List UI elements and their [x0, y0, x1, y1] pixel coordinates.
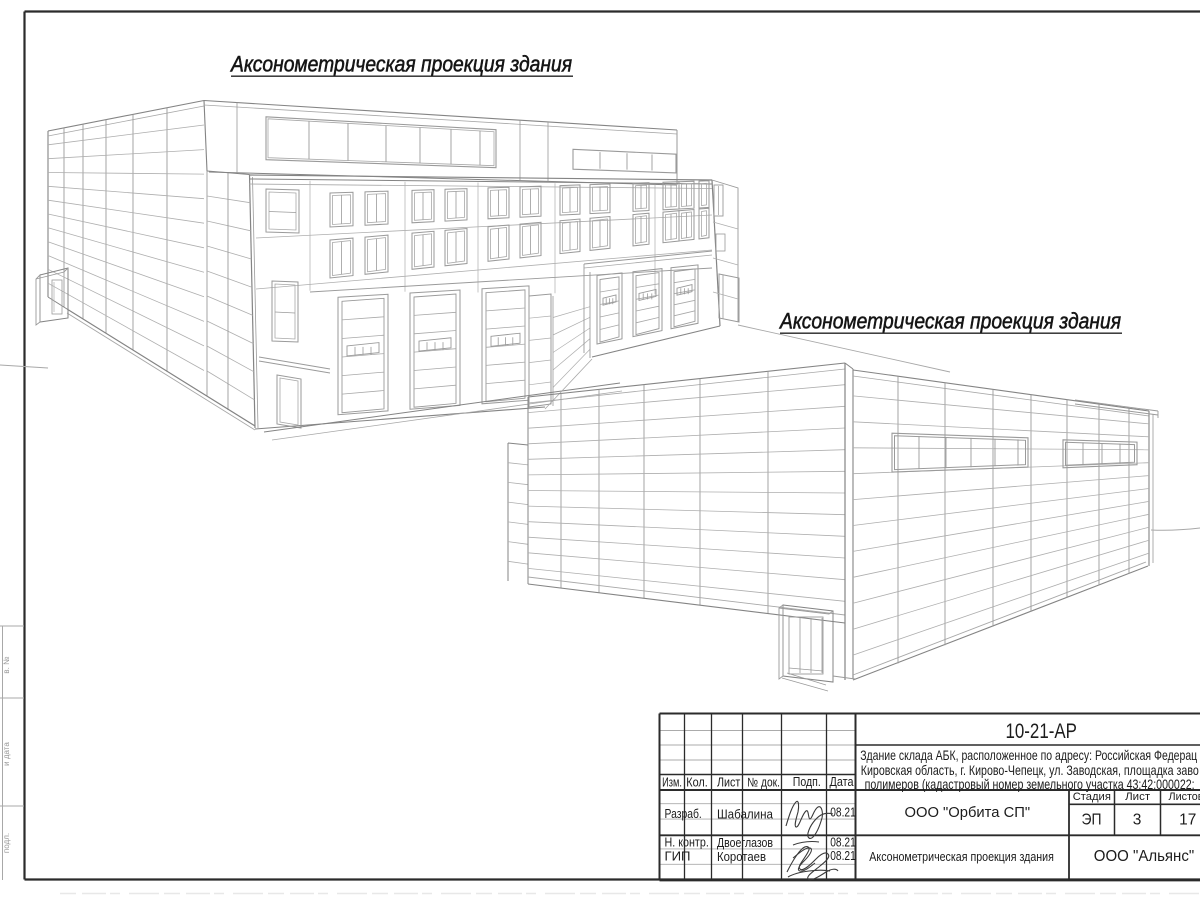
- svg-text:№ док.: № док.: [747, 775, 780, 789]
- svg-text:Лист: Лист: [1125, 791, 1150, 803]
- svg-text:и дата: и дата: [2, 742, 11, 766]
- svg-text:Аксонометрическая проекция зда: Аксонометрическая проекция здания: [778, 309, 1121, 334]
- svg-text:3: 3: [1133, 812, 1142, 829]
- svg-text:Аксонометрическая проекция зда: Аксонометрическая проекция здания: [869, 850, 1054, 864]
- svg-text:08.21: 08.21: [830, 805, 856, 820]
- svg-text:Разраб.: Разраб.: [665, 806, 702, 821]
- svg-text:Н. контр.: Н. контр.: [665, 835, 709, 850]
- svg-text:Дата: Дата: [830, 775, 854, 789]
- svg-text:Коротаев: Коротаев: [717, 849, 766, 864]
- svg-text:в. №: в. №: [2, 656, 11, 674]
- svg-text:Кол.: Кол.: [686, 775, 708, 789]
- svg-text:Лист: Лист: [717, 775, 741, 789]
- svg-text:Аксонометрическая проекция зда: Аксонометрическая проекция здания: [229, 52, 572, 77]
- svg-text:Шабалина: Шабалина: [717, 807, 774, 822]
- svg-text:полимеров (кадастровый номер з: полимеров (кадастровый номер земельного …: [865, 777, 1195, 792]
- svg-text:10-21-АР: 10-21-АР: [1006, 720, 1077, 743]
- svg-text:Листов: Листов: [1169, 791, 1200, 803]
- svg-text:ООО "Орбита СП": ООО "Орбита СП": [905, 804, 1031, 821]
- svg-text:Здание склада АБК, расположенн: Здание склада АБК, расположенное по адре…: [860, 748, 1197, 763]
- svg-text:Подп.: Подп.: [793, 775, 821, 789]
- svg-text:ООО "Альянс": ООО "Альянс": [1094, 848, 1194, 865]
- svg-text:17: 17: [1179, 812, 1196, 829]
- svg-text:08.21: 08.21: [830, 848, 856, 863]
- svg-text:Изм.: Изм.: [662, 775, 682, 789]
- svg-text:Двоеглазов: Двоеглазов: [717, 835, 773, 850]
- svg-text:подл.: подл.: [2, 833, 11, 853]
- svg-text:ГИП: ГИП: [665, 849, 691, 864]
- svg-text:ЭП: ЭП: [1082, 812, 1102, 829]
- svg-text:Стадия: Стадия: [1073, 791, 1111, 803]
